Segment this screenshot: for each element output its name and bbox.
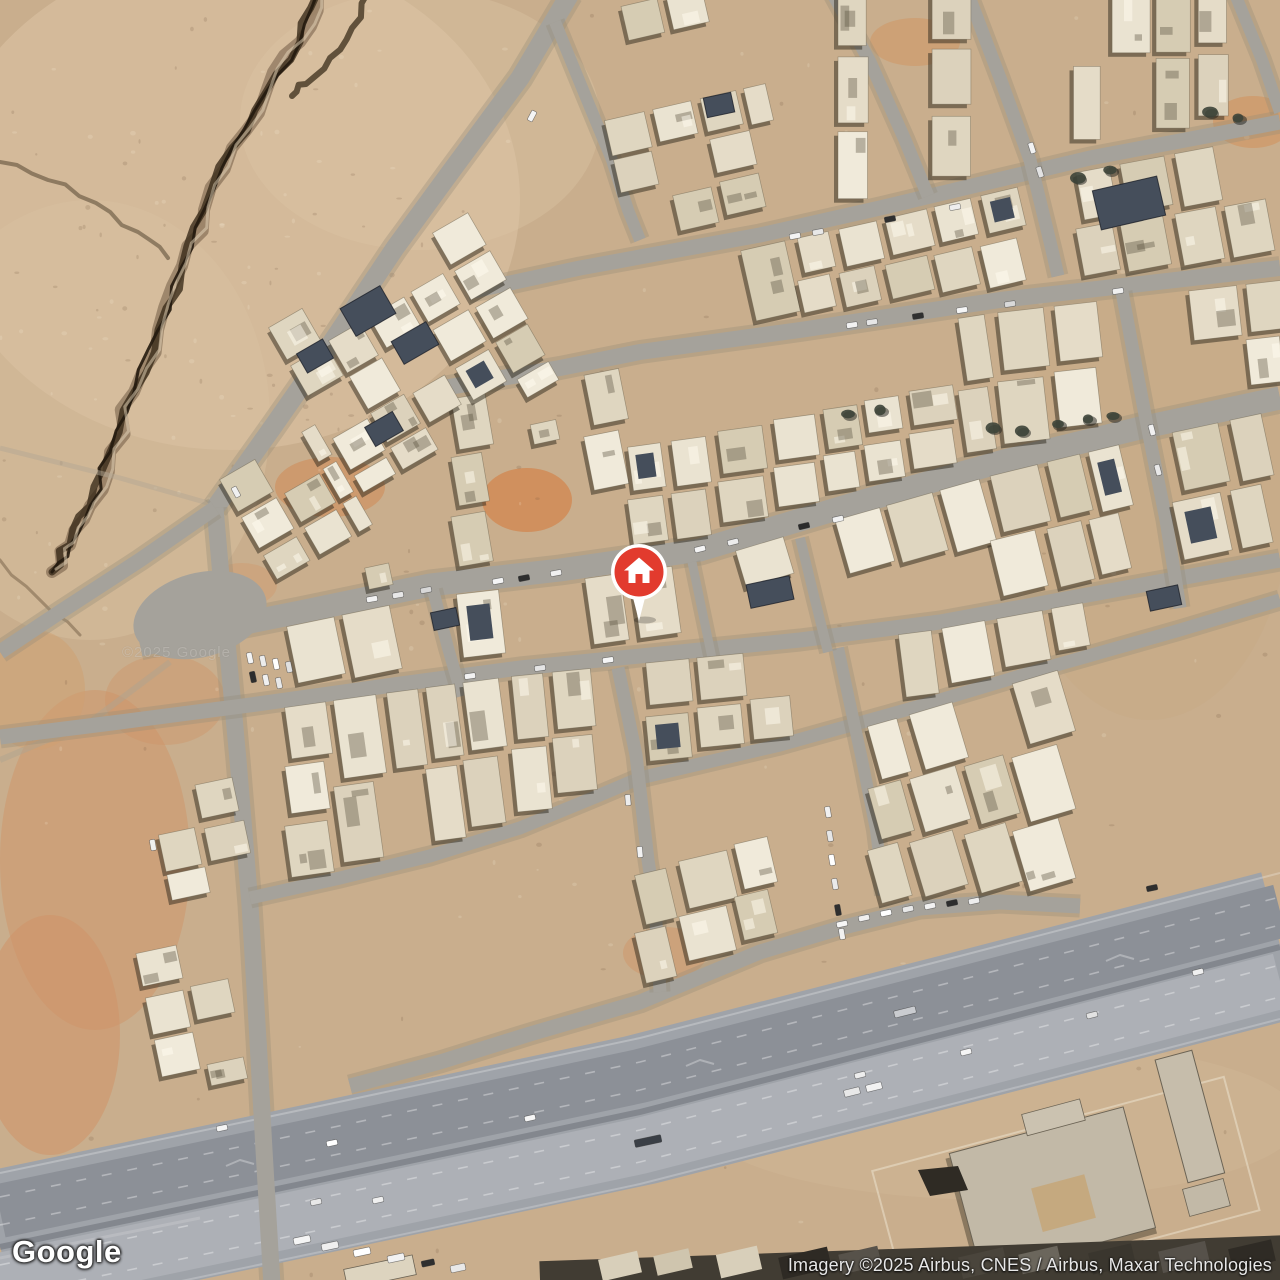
- satellite-map[interactable]: ©2025 Google Google Imagery ©2025 Airbus…: [0, 0, 1280, 1280]
- google-watermark: ©2025 Google: [122, 644, 231, 661]
- imagery-layers: [0, 0, 1280, 1280]
- satellite-imagery: [0, 0, 1280, 1280]
- imagery-attribution: Imagery ©2025 Airbus, CNES / Airbus, Max…: [788, 1255, 1272, 1276]
- pin-shadow: [634, 617, 656, 624]
- location-pin[interactable]: [607, 540, 671, 624]
- google-logo[interactable]: Google: [12, 1234, 122, 1270]
